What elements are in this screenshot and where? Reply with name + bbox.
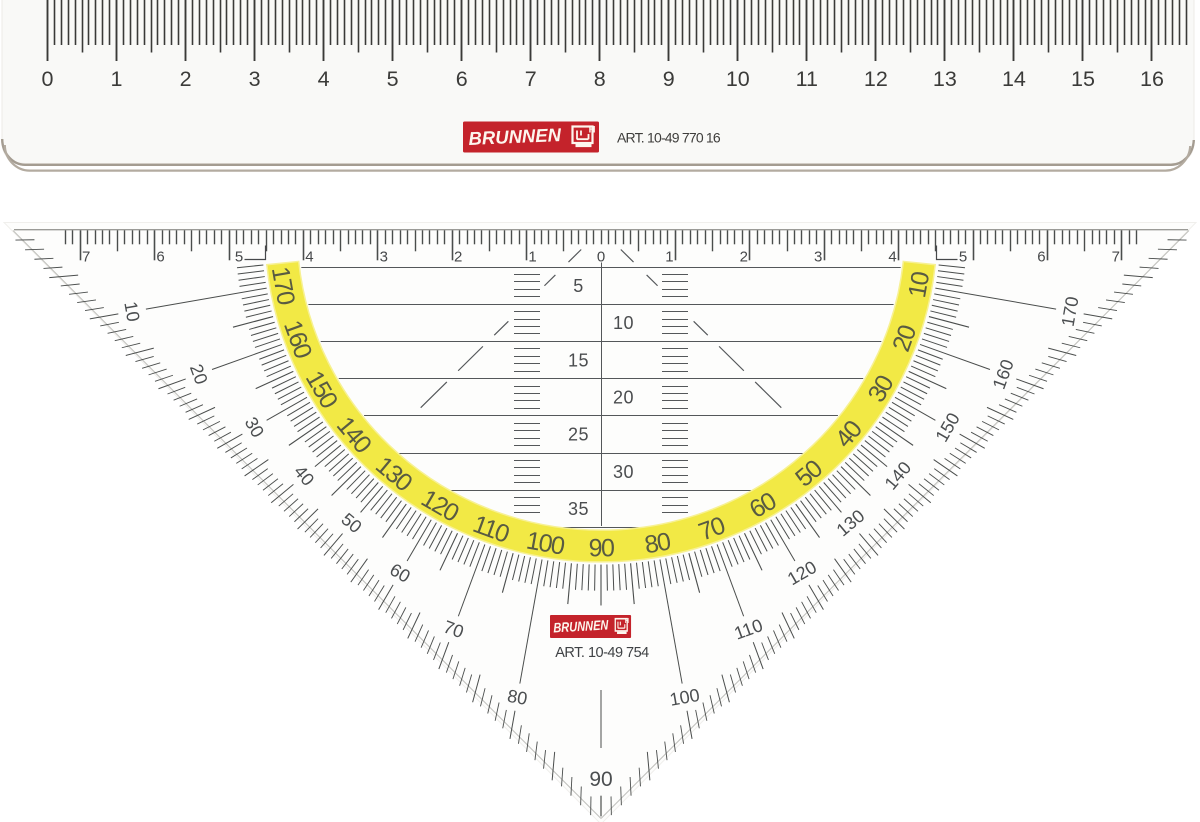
svg-text:0: 0 (42, 67, 54, 91)
svg-text:1: 1 (665, 249, 673, 266)
svg-text:2: 2 (740, 249, 748, 266)
svg-text:1: 1 (528, 249, 536, 266)
svg-text:BRUNNEN: BRUNNEN (468, 124, 562, 149)
svg-text:25: 25 (568, 425, 589, 445)
svg-text:90: 90 (589, 534, 614, 562)
svg-text:3: 3 (814, 249, 822, 266)
svg-text:30: 30 (613, 462, 634, 482)
svg-text:ART. 10-49 754: ART. 10-49 754 (555, 645, 649, 661)
svg-text:5: 5 (959, 249, 967, 266)
svg-text:10: 10 (120, 300, 143, 323)
svg-text:ART. 10-49 770 16: ART. 10-49 770 16 (617, 130, 721, 146)
svg-text:80: 80 (506, 686, 529, 709)
svg-text:35: 35 (568, 499, 589, 519)
svg-text:H: H (589, 125, 596, 136)
svg-text:4: 4 (318, 67, 330, 91)
svg-text:6: 6 (1037, 249, 1045, 266)
svg-text:5: 5 (573, 276, 584, 296)
svg-text:7: 7 (1112, 249, 1120, 266)
svg-text:5: 5 (387, 67, 399, 91)
svg-text:12: 12 (864, 67, 888, 91)
svg-text:13: 13 (933, 67, 957, 91)
svg-text:20: 20 (613, 388, 634, 408)
svg-text:10: 10 (613, 313, 634, 333)
svg-text:15: 15 (1071, 67, 1095, 91)
svg-text:5: 5 (235, 249, 243, 266)
svg-text:3: 3 (380, 249, 388, 266)
svg-text:14: 14 (1002, 67, 1026, 91)
svg-text:1: 1 (111, 67, 123, 91)
svg-text:4: 4 (305, 249, 313, 266)
svg-text:90: 90 (589, 768, 612, 791)
svg-text:6: 6 (156, 249, 164, 266)
svg-text:BRUNNEN: BRUNNEN (553, 617, 609, 635)
svg-text:9: 9 (663, 67, 675, 91)
svg-text:3: 3 (249, 67, 261, 91)
svg-text:7: 7 (82, 249, 90, 266)
svg-text:4: 4 (888, 249, 896, 266)
svg-text:6: 6 (456, 67, 468, 91)
svg-text:16: 16 (1140, 67, 1164, 91)
svg-text:2: 2 (180, 67, 192, 91)
svg-text:H: H (625, 618, 629, 626)
svg-text:2: 2 (454, 249, 462, 266)
svg-text:7: 7 (525, 67, 537, 91)
svg-text:10: 10 (726, 67, 750, 91)
svg-text:11: 11 (796, 67, 818, 91)
svg-text:15: 15 (568, 350, 589, 370)
svg-text:8: 8 (594, 67, 606, 91)
